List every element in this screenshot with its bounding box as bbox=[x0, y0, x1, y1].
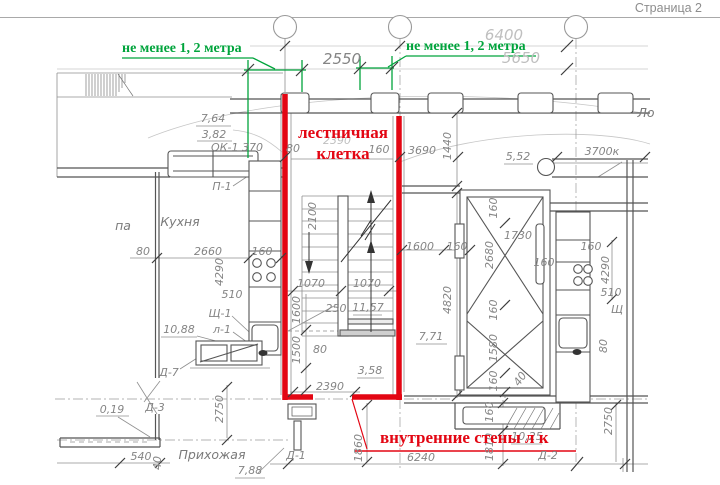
dim-label: 40 bbox=[151, 456, 164, 470]
dim-label: 1440 bbox=[441, 132, 454, 160]
dim-label: Д-3 bbox=[144, 401, 165, 414]
dim-label: Щ bbox=[611, 303, 623, 316]
dim-label: Д-2 bbox=[537, 449, 558, 462]
floor-plan-drawing: 6400255056507,643,82ОК-1 370802390160369… bbox=[0, 0, 720, 485]
dim-label: 7,71 bbox=[419, 330, 444, 343]
dim-label: 4290 bbox=[213, 258, 226, 286]
dim-label: 10,88 bbox=[163, 323, 195, 336]
dim-label: 2660 bbox=[194, 245, 222, 258]
dim-label: 1070 bbox=[297, 277, 325, 290]
dim-label: Д-1 bbox=[285, 449, 306, 462]
green-note-right: не менее 1, 2 метра bbox=[406, 39, 526, 55]
green-note-left: не менее 1, 2 метра bbox=[122, 41, 242, 57]
stair-label-line1: лестничная bbox=[288, 122, 398, 143]
dim-label: 250 bbox=[326, 302, 347, 315]
dim-label: 0,19 bbox=[100, 403, 125, 416]
dim-label: 80 bbox=[136, 245, 150, 258]
dim-label: 11,57 bbox=[352, 301, 384, 314]
dim-label: 7,88 bbox=[238, 464, 263, 477]
dim-label: л-1 bbox=[212, 323, 231, 336]
dim-label: 160 bbox=[487, 371, 500, 392]
dim-label: 5,52 bbox=[506, 150, 531, 163]
dim-label: Прихожая bbox=[179, 447, 246, 462]
dim-label: 1500 bbox=[290, 336, 303, 364]
dim-label: 1600 bbox=[290, 296, 303, 324]
dim-label: 160 bbox=[581, 240, 602, 253]
stair-label-line2: клетка bbox=[288, 143, 398, 164]
dim-label: 2100 bbox=[306, 202, 319, 230]
dim-label: Д-7 bbox=[158, 366, 179, 379]
dim-label: 540 bbox=[131, 450, 152, 463]
dim-label: 7,64 bbox=[201, 112, 226, 125]
dim-label: 3690 bbox=[408, 144, 436, 157]
dim-label: 2390 bbox=[316, 380, 344, 393]
dim-label: 1580 bbox=[487, 334, 500, 362]
dim-label: 160 bbox=[487, 300, 500, 321]
stair-label: лестничная клетка bbox=[288, 122, 398, 165]
dim-label: Щ-1 bbox=[209, 307, 232, 320]
dim-label: 1730 bbox=[504, 229, 532, 242]
dim-label: 4290 bbox=[599, 256, 612, 284]
dim-label: 2750 bbox=[602, 407, 615, 435]
dim-label: 4820 bbox=[441, 286, 454, 314]
dim-label: 2750 bbox=[213, 395, 226, 423]
dim-label: 3700к bbox=[585, 145, 620, 158]
dim-label: 6240 bbox=[407, 451, 435, 464]
dim-label: 80 bbox=[313, 343, 327, 356]
dim-label: 3,58 bbox=[358, 364, 383, 377]
dim-label: 2680 bbox=[483, 241, 496, 269]
dim-label: 160 bbox=[252, 245, 273, 258]
dim-label: 1600 bbox=[406, 240, 434, 253]
dim-label: 1860 bbox=[352, 434, 365, 462]
dim-label: 160 bbox=[483, 402, 496, 423]
dim-label: 160 bbox=[447, 240, 468, 253]
dim-label: ОК-1 370 bbox=[211, 141, 263, 154]
dim-label: Кухня bbox=[160, 214, 200, 229]
dim-label: 80 bbox=[597, 339, 610, 353]
scanned-floor-plan-page: Страница 2 bbox=[0, 0, 720, 485]
dim-label: П-1 bbox=[212, 180, 231, 193]
dim-label: 2550 bbox=[323, 50, 361, 68]
dim-label: 160 bbox=[487, 198, 500, 219]
dim-label: 3,82 bbox=[202, 128, 227, 141]
dim-label: 1070 bbox=[353, 277, 381, 290]
dim-label: 510 bbox=[222, 288, 243, 301]
inner-walls-label: внутренние стены л к bbox=[380, 427, 549, 448]
dim-label: па bbox=[115, 218, 131, 233]
dim-label: 160 bbox=[534, 256, 555, 269]
dim-label: Ло bbox=[636, 105, 654, 120]
dim-label: 510 bbox=[601, 286, 622, 299]
